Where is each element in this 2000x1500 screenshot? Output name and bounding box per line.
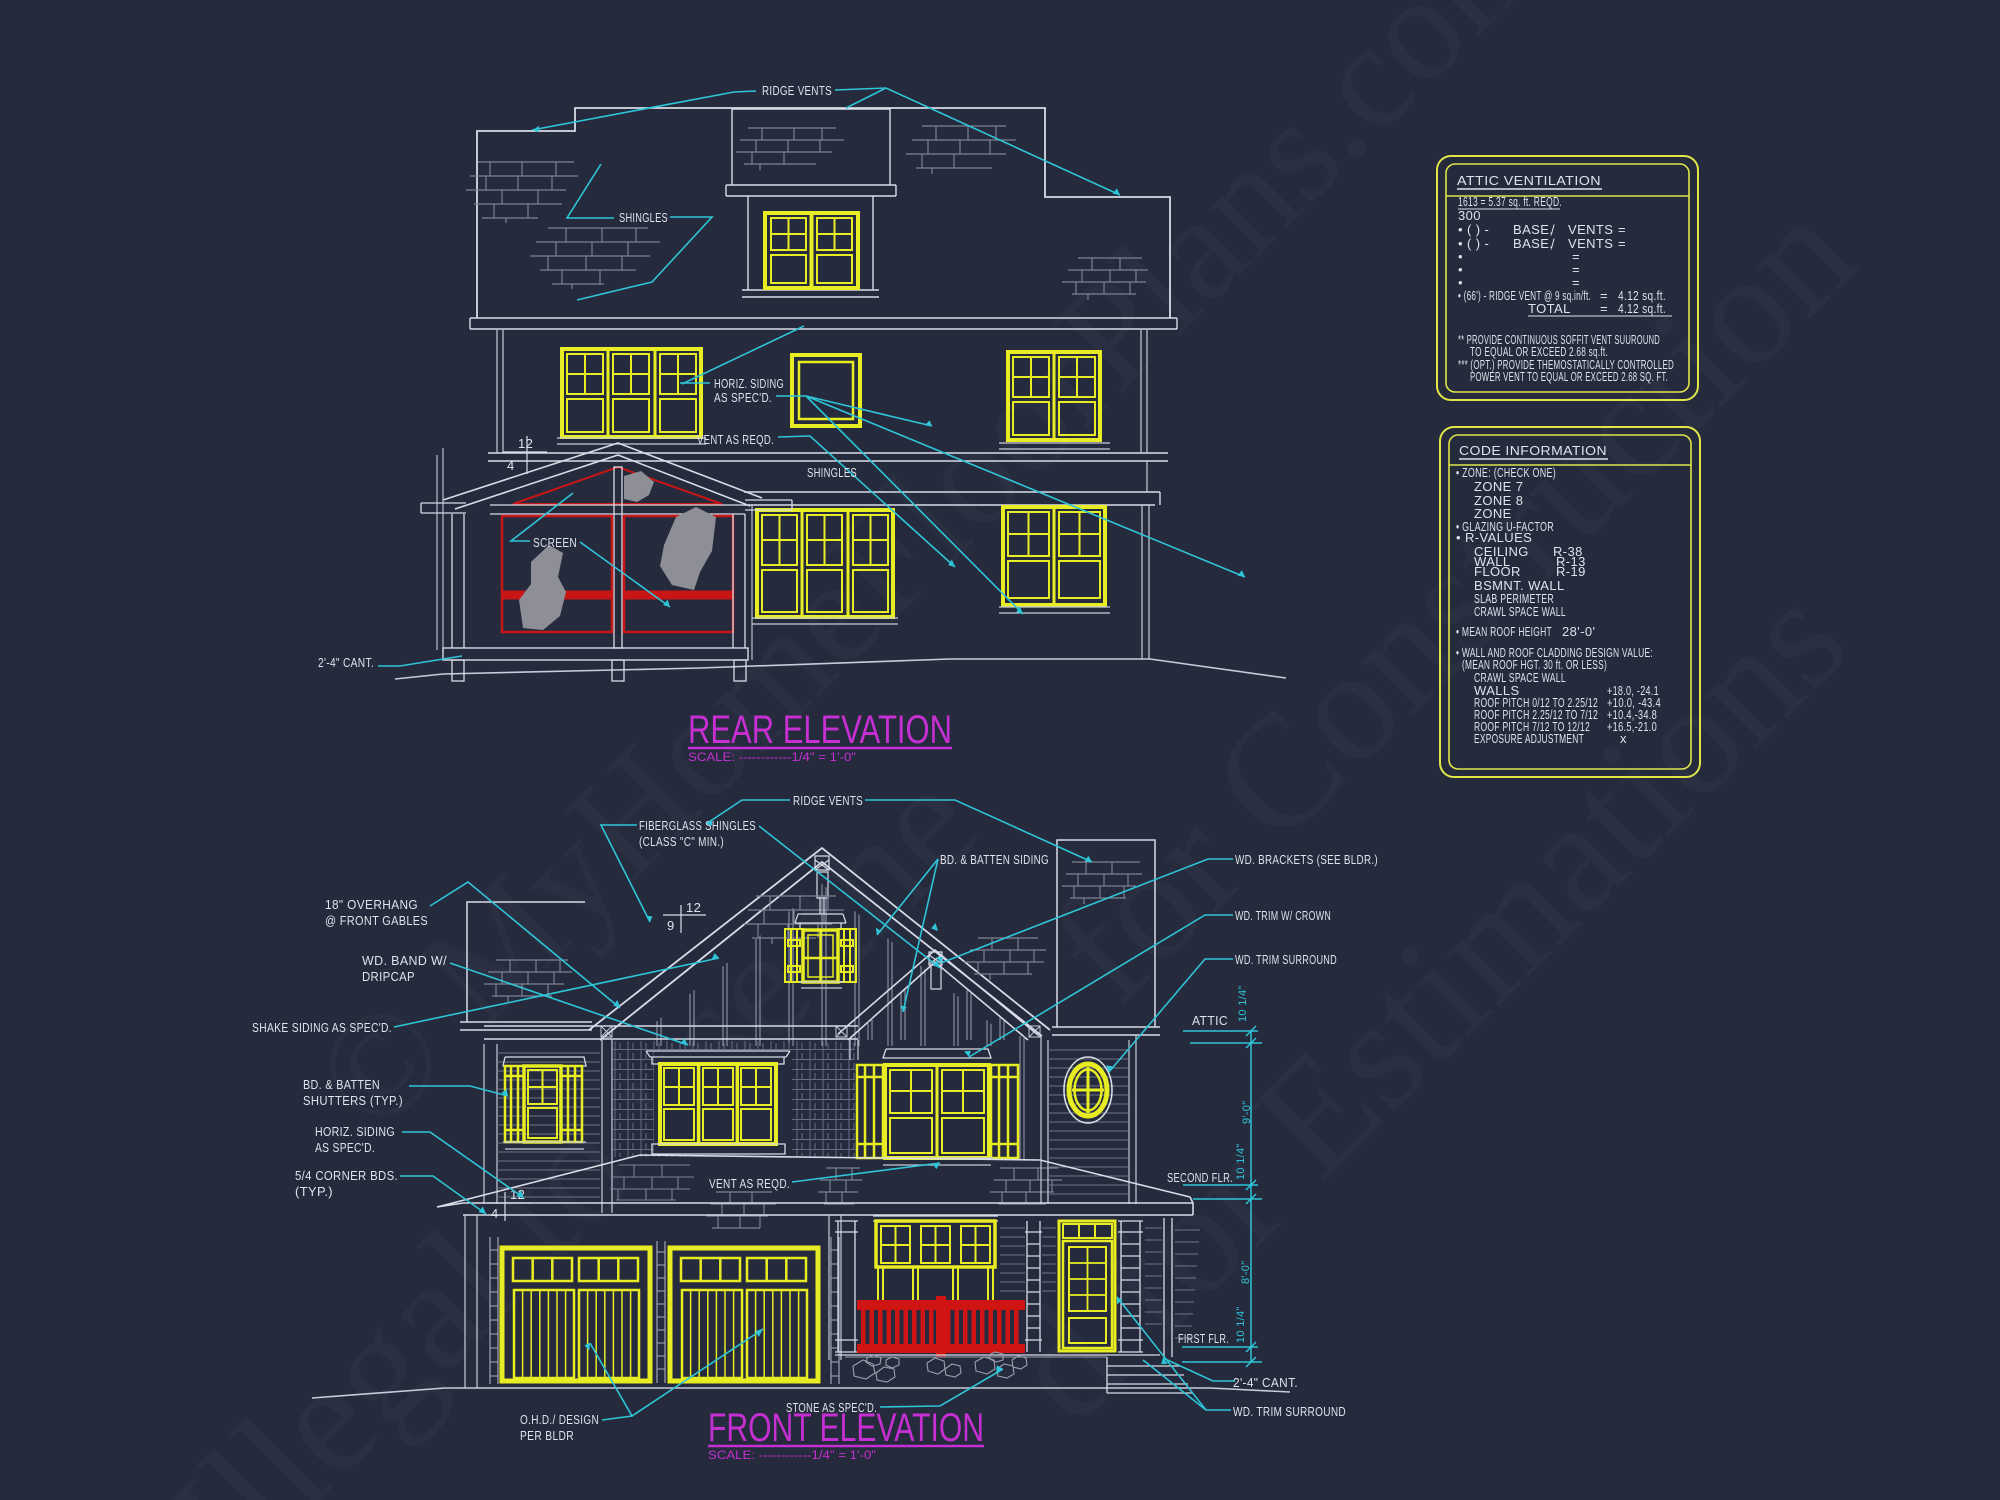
svg-text:EXPOSURE ADJUSTMENT: EXPOSURE ADJUSTMENT [1474,731,1584,746]
svg-text:HORIZ. SIDING: HORIZ. SIDING [714,376,784,391]
svg-text:SCREEN: SCREEN [533,535,577,550]
svg-text:SHAKE SIDING AS SPEC'D.: SHAKE SIDING AS SPEC'D. [252,1020,392,1035]
svg-text:9: 9 [667,918,675,933]
svg-text:FIBERGLASS SHINGLES: FIBERGLASS SHINGLES [639,818,756,833]
svg-text:9'-0": 9'-0" [1241,1101,1253,1124]
svg-text:SCALE: ------------1/4" = 1'-0: SCALE: ------------1/4" = 1'-0" [708,1450,876,1462]
svg-text:BASE,: BASE, [1513,236,1553,251]
svg-text:WD. BAND W/: WD. BAND W/ [362,953,447,968]
svg-text:(TYP.): (TYP.) [295,1184,333,1199]
svg-text:FIRST FLR.: FIRST FLR. [1178,1331,1229,1346]
svg-text:RIDGE VENTS: RIDGE VENTS [793,793,863,808]
svg-text:FLOOR: FLOOR [1474,564,1521,579]
svg-text:TOTAL: TOTAL [1528,301,1571,316]
svg-text:@ FRONT GABLES: @ FRONT GABLES [325,913,428,928]
svg-text:1613 = 5.37 sq. ft. REQD.: 1613 = 5.37 sq. ft. REQD. [1458,194,1562,209]
svg-text:5/4 CORNER BDS.: 5/4 CORNER BDS. [295,1168,398,1183]
svg-text:• MEAN ROOF HEIGHT: • MEAN ROOF HEIGHT [1456,624,1552,639]
svg-text:+16.5,-21.0: +16.5,-21.0 [1607,719,1657,734]
svg-text:• R-VALUES: • R-VALUES [1456,530,1532,545]
svg-text:SHUTTERS (TYP.): SHUTTERS (TYP.) [303,1093,403,1108]
svg-text:ATTIC VENTILATION: ATTIC VENTILATION [1457,173,1601,188]
svg-text:REAR ELEVATION: REAR ELEVATION [688,708,952,752]
svg-text:CRAWL SPACE WALL: CRAWL SPACE WALL [1474,604,1566,619]
svg-text:• ( ) -: • ( ) - [1458,222,1489,237]
svg-text:• ZONE: (CHECK ONE): • ZONE: (CHECK ONE) [1456,465,1556,480]
svg-text:300: 300 [1458,208,1481,223]
svg-text:(CLASS "C" MIN.): (CLASS "C" MIN.) [639,834,724,849]
svg-text:12: 12 [518,436,533,451]
svg-text:SCALE: ------------1/4" = 1'-0: SCALE: ------------1/4" = 1'-0" [688,752,856,764]
svg-text:4: 4 [507,458,515,473]
svg-text:BD. & BATTEN SIDING: BD. & BATTEN SIDING [940,852,1049,867]
svg-text:ZONE 7: ZONE 7 [1474,479,1523,494]
svg-text:4: 4 [491,1206,499,1221]
svg-text:CODE INFORMATION: CODE INFORMATION [1459,443,1607,458]
svg-text:WD. TRIM SURROUND: WD. TRIM SURROUND [1233,1404,1346,1419]
svg-text:PER BLDR: PER BLDR [520,1428,574,1443]
svg-text:DRIPCAP: DRIPCAP [362,969,415,984]
svg-text:28'-0': 28'-0' [1562,624,1595,639]
svg-text:4.12 sq.ft.: 4.12 sq.ft. [1618,301,1666,316]
svg-text:VENT AS REQD.: VENT AS REQD. [697,432,774,447]
svg-text:O.H.D./ DESIGN: O.H.D./ DESIGN [520,1412,599,1427]
svg-text:ATTIC: ATTIC [1192,1013,1228,1028]
svg-text:10 1/4": 10 1/4" [1237,985,1249,1022]
svg-text:FRONT ELEVATION: FRONT ELEVATION [708,1406,984,1450]
svg-text:POWER VENT TO EQUAL OR EXCEED: POWER VENT TO EQUAL OR EXCEED 2.68 SQ. F… [1470,369,1668,384]
svg-text:RIDGE VENTS: RIDGE VENTS [762,83,832,98]
svg-text:10 1/4": 10 1/4" [1235,1306,1247,1343]
svg-text:x: x [1620,731,1627,746]
svg-text:WD. TRIM W/ CROWN: WD. TRIM W/ CROWN [1235,908,1331,923]
svg-text:=: = [1618,222,1626,237]
svg-text:2'-4" CANT.: 2'-4" CANT. [1233,1375,1298,1390]
svg-text:VENTS: VENTS [1568,222,1613,237]
svg-text:WD. BRACKETS (SEE BLDR.): WD. BRACKETS (SEE BLDR.) [1235,852,1378,867]
svg-text:12: 12 [686,900,701,915]
svg-text:AS SPEC'D.: AS SPEC'D. [714,390,772,405]
svg-text:2'-4" CANT.: 2'-4" CANT. [318,655,374,670]
svg-text:SECOND FLR.: SECOND FLR. [1167,1170,1233,1185]
svg-text:=: = [1600,301,1608,316]
svg-text:=: = [1618,236,1626,251]
svg-text:SHINGLES: SHINGLES [619,210,668,225]
svg-text:18" OVERHANG: 18" OVERHANG [325,897,418,912]
svg-text:/: / [1551,236,1555,251]
svg-text:BASE,: BASE, [1513,222,1553,237]
svg-text:AS SPEC'D.: AS SPEC'D. [315,1140,375,1155]
svg-text:8'-0": 8'-0" [1240,1261,1252,1284]
svg-text:VENT AS REQD.: VENT AS REQD. [709,1176,790,1191]
svg-text:/: / [1551,222,1555,237]
svg-text:HORIZ. SIDING: HORIZ. SIDING [315,1124,395,1139]
svg-text:• (66') - RIDGE VENT @ 9 sq.in: • (66') - RIDGE VENT @ 9 sq.in/ft. [1458,288,1591,303]
svg-text:SHINGLES: SHINGLES [807,465,857,480]
svg-text:R-19: R-19 [1556,564,1586,579]
svg-text:WD. TRIM SURROUND: WD. TRIM SURROUND [1235,952,1337,967]
svg-text:10 1/4": 10 1/4" [1235,1143,1247,1180]
svg-text:BD. & BATTEN: BD. & BATTEN [303,1077,380,1092]
